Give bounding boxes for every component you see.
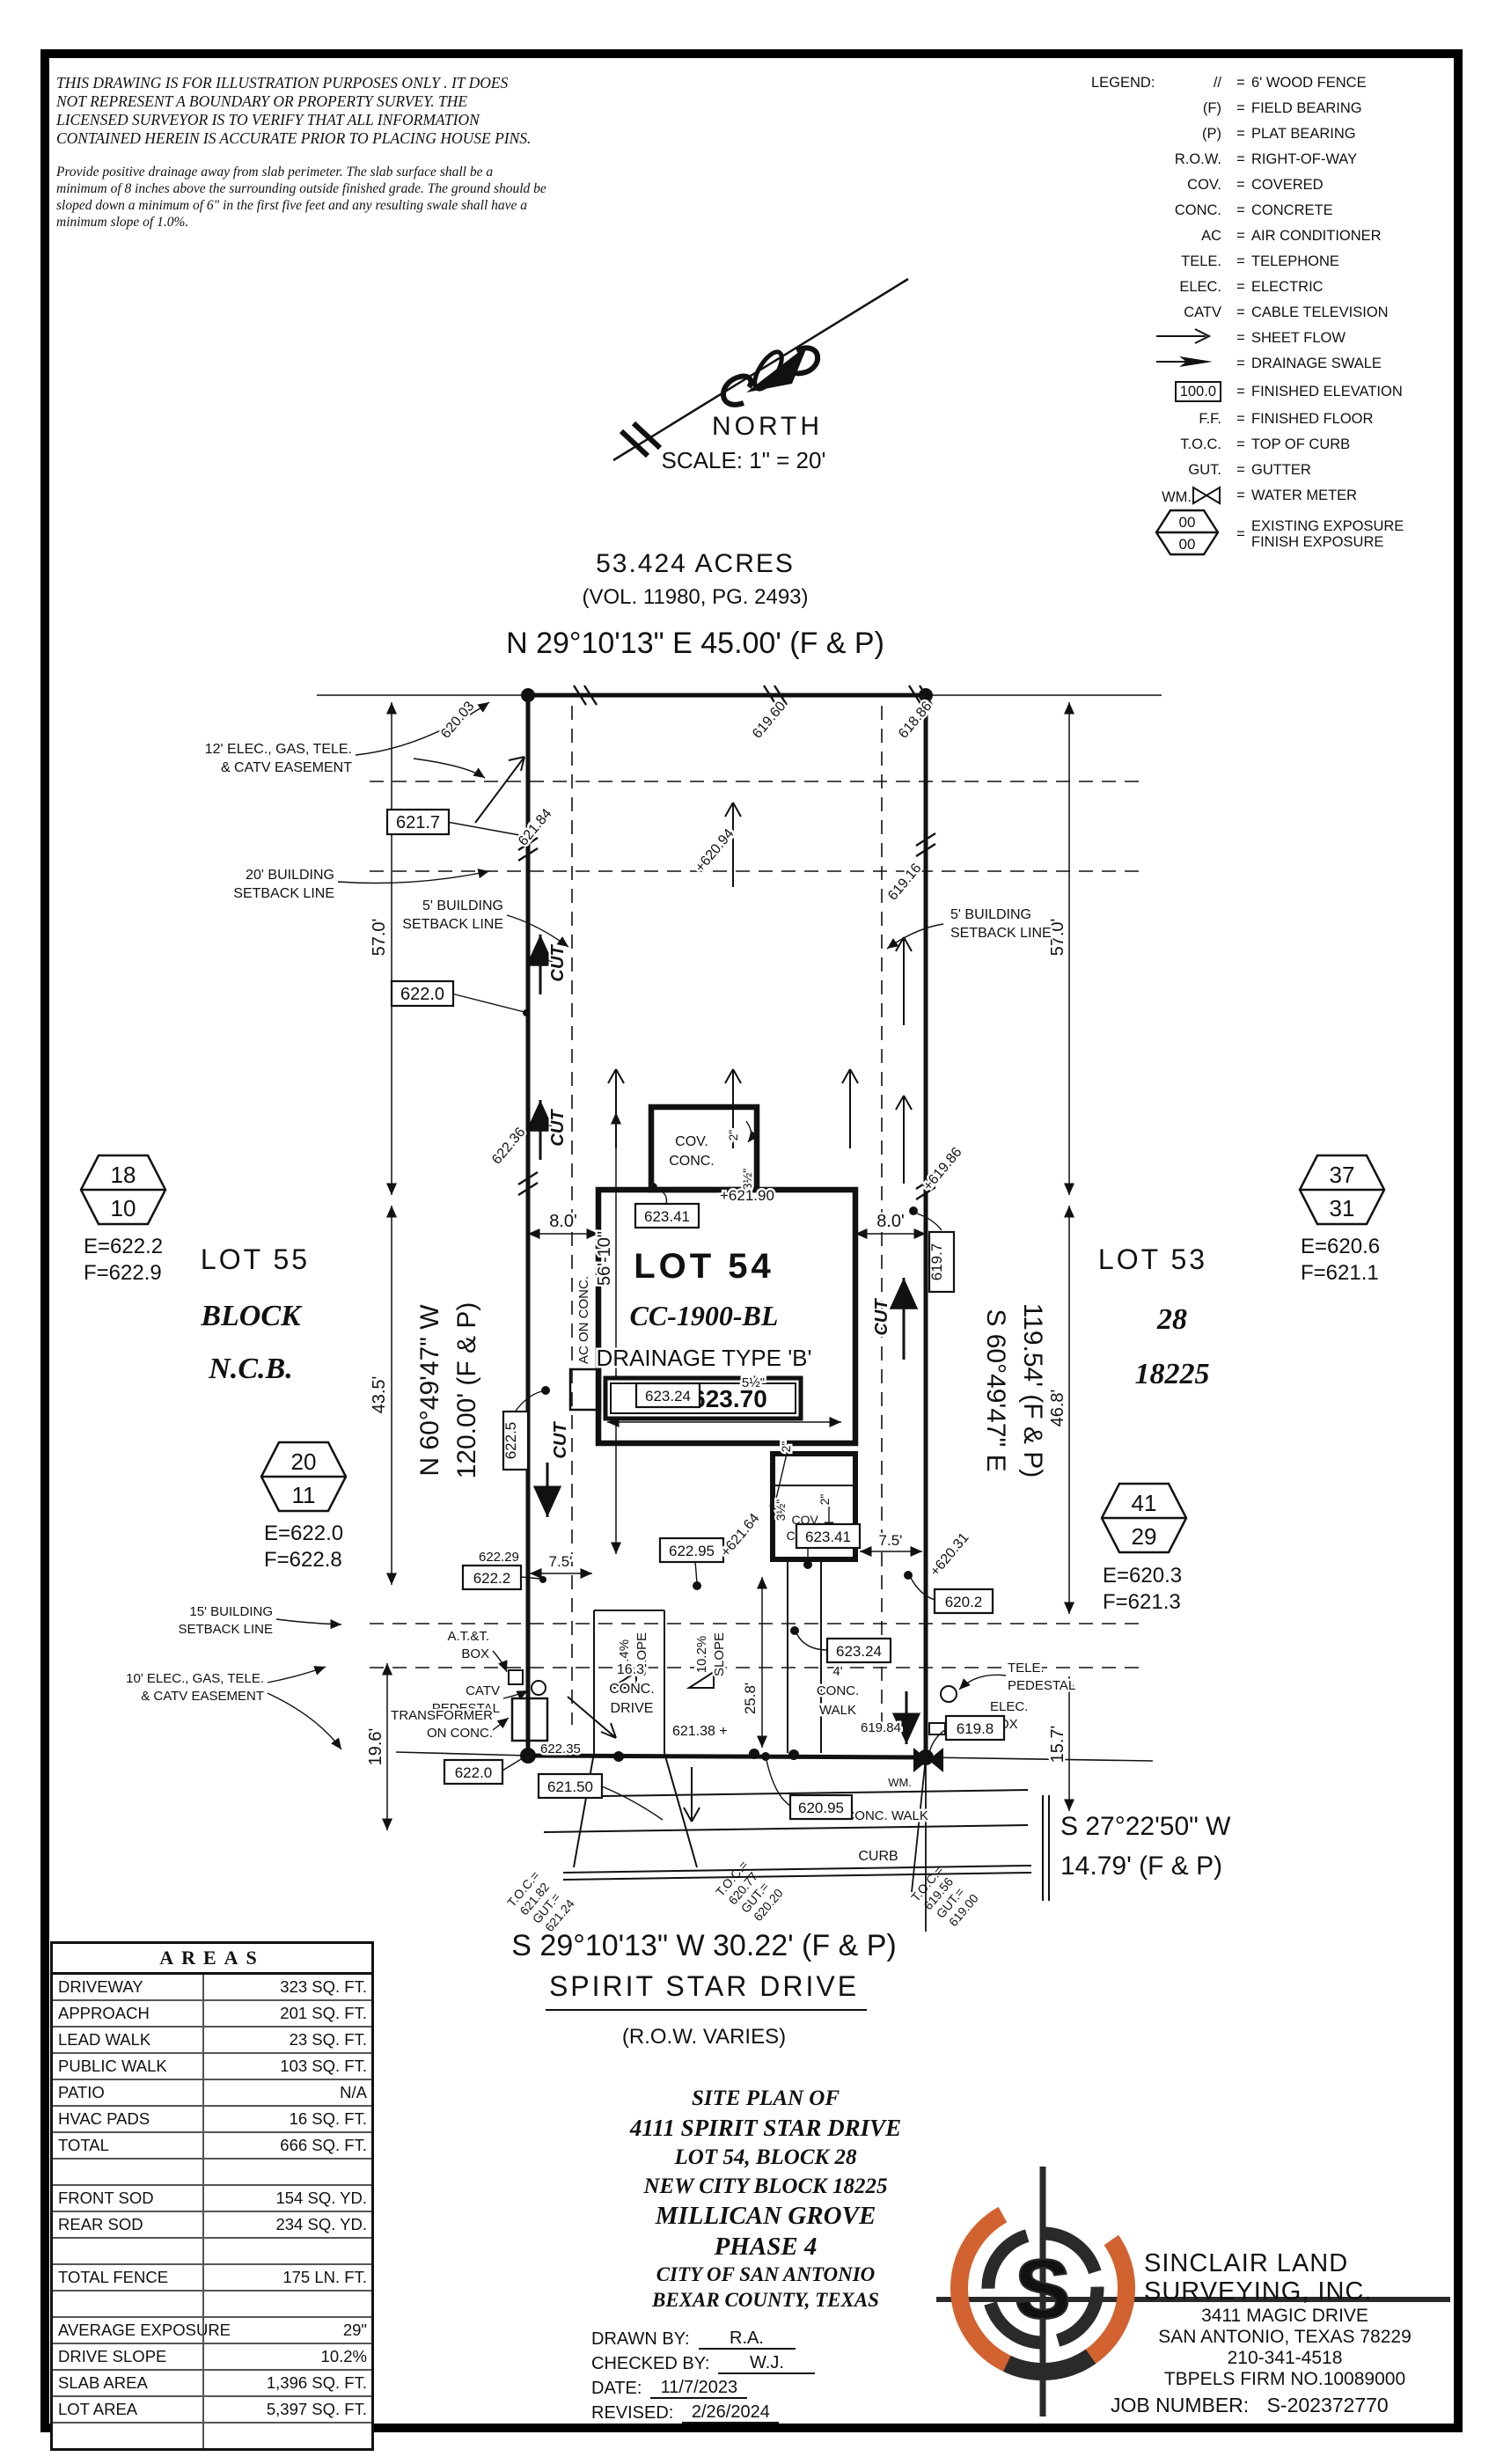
left-bearing-line2: 120.00' (F & P) [452,1302,481,1479]
svg-text:15.7': 15.7' [1048,1726,1067,1764]
table-row: REAR SOD234 SQ. YD. [53,2212,371,2239]
table-row: PUBLIC WALK103 SQ. FT. [53,2054,371,2080]
scale-label: SCALE: 1" = 20' [662,447,826,473]
svg-text:41: 41 [1132,1490,1157,1516]
svg-text:2": 2" [726,1130,740,1141]
row-label [53,2239,202,2263]
svg-text:F=621.1: F=621.1 [1301,1261,1379,1285]
svg-text:CURB: CURB [858,1849,898,1864]
drawn-by-row: DRAWN BY:R.A. [591,2325,961,2350]
svg-text:621.38 +: 621.38 + [672,1724,728,1739]
title-block: SITE PLAN OF 4111 SPIRIT STAR DRIVE LOT … [528,2084,1003,2313]
row-value: 175 LN. FT. [202,2265,371,2290]
svg-text:621.7: 621.7 [396,813,440,832]
left-bearing-line1: N 60°49'47" W [415,1304,444,1477]
svg-text:SETBACK LINE: SETBACK LINE [178,1622,273,1637]
row-label: DRIVEWAY [53,1975,202,1999]
svg-text:E=620.3: E=620.3 [1103,1564,1182,1588]
field-value: W.J. [718,2353,815,2374]
svg-text:19.6': 19.6' [366,1728,385,1766]
svg-text:2": 2" [779,1441,793,1453]
lot53-label: LOT 53 [1098,1243,1207,1275]
svg-text:CUT: CUT [872,1298,891,1336]
title-line: CITY OF SAN ANTONIO [528,2262,1003,2287]
svg-text:622.36: 622.36 [489,1125,529,1167]
svg-text:37: 37 [1330,1162,1355,1188]
svg-text:5½": 5½" [742,1375,765,1390]
table-row: TOTAL FENCE175 LN. FT. [53,2265,371,2292]
svg-text:619.7: 619.7 [928,1243,945,1281]
job-number: JOB NUMBER: S-202372770 [1111,2394,1454,2417]
title-line: 4111 SPIRIT STAR DRIVE [528,2113,1003,2143]
row-label: HVAC PADS [53,2107,202,2131]
svg-text:SETBACK LINE: SETBACK LINE [950,926,1052,941]
surveyor-name: SINCLAIR LAND SURVEYING, INC. [1144,2249,1452,2306]
table-row: SLAB AREA1,396 SQ. FT. [53,2371,371,2397]
row-label: REAR SOD [53,2212,202,2237]
row-value: 1,396 SQ. FT. [202,2371,371,2395]
svg-text:7.5': 7.5' [879,1532,903,1549]
svg-text:TRANSFORMER: TRANSFORMER [391,1708,493,1723]
svg-text:8.0': 8.0' [876,1212,905,1231]
lot55-label: LOT 55 [201,1243,310,1275]
title-line: SITE PLAN OF [528,2084,1003,2113]
svg-text:621.50: 621.50 [547,1778,593,1795]
svg-text:3½": 3½" [774,1500,788,1521]
job-number-value: S-202372770 [1267,2394,1389,2416]
north-label: NORTH [712,412,823,441]
svg-text:29: 29 [1132,1523,1157,1550]
svg-text:F=622.8: F=622.8 [264,1548,342,1572]
svg-text:622.29: 622.29 [479,1550,519,1565]
row-label: PUBLIC WALK [53,2054,202,2079]
revised-row: REVISED:2/26/2024 [591,2399,961,2424]
svg-text:623.41: 623.41 [644,1208,690,1225]
row-value: 5,397 SQ. FT. [202,2397,371,2422]
svg-text:4': 4' [832,1664,842,1679]
block-word: BLOCK [200,1300,303,1332]
svg-text:46.8': 46.8' [1048,1390,1067,1427]
svg-text:A.T.&T.: A.T.&T. [447,1629,489,1644]
row-varies-label: (R.O.W. VARIES) [622,2025,786,2049]
field-value: 2/26/2024 [682,2402,779,2424]
svg-text:622.5: 622.5 [502,1422,519,1460]
surveyor-city: SAN ANTONIO, TEXAS 78229 [1118,2327,1452,2348]
svg-text:31: 31 [1330,1195,1355,1221]
right-bearing-line1: S 60°49'47" E [981,1309,1010,1471]
svg-text:PEDESTAL: PEDESTAL [1008,1678,1075,1693]
title-line: BEXAR COUNTY, TEXAS [528,2287,1003,2313]
row-label: LOT AREA [53,2397,202,2422]
areas-title: AREAS [53,1944,371,1975]
surveyor-phone: 210-341-4518 [1118,2348,1452,2369]
svg-text:619.84: 619.84 [861,1720,901,1735]
svg-text:SETBACK LINE: SETBACK LINE [233,886,334,901]
svg-text:10: 10 [111,1195,136,1221]
surveyor-firm-number: TBPELS FIRM NO.10089000 [1118,2369,1452,2390]
title-line: NEW CITY BLOCK 18225 [528,2172,1003,2201]
svg-text:623.24: 623.24 [836,1643,882,1660]
surveyor-name-line1: SINCLAIR LAND [1144,2249,1452,2277]
field-label: DRAWN BY: [591,2329,690,2350]
table-row: DRIVEWAY323 SQ. FT. [53,1975,371,2001]
svg-text:43.5': 43.5' [370,1376,389,1414]
row-label: AVERAGE EXPOSURE [53,2318,202,2343]
table-row: FRONT SOD154 SQ. YD. [53,2186,371,2212]
field-label: REVISED: [591,2403,673,2424]
svg-text:622.0: 622.0 [400,985,444,1004]
row-value: 29" [202,2318,371,2343]
row-value: 23 SQ. FT. [202,2028,371,2052]
corner-bearing-line1: S 27°22'50" W [1060,1812,1231,1841]
svg-text:2": 2" [818,1494,832,1506]
row-label: TOTAL FENCE [53,2265,202,2290]
logo-letter: S [1015,2242,1071,2336]
ncb-18225: 18225 [1135,1358,1210,1390]
svg-text:622.2: 622.2 [473,1570,511,1587]
svg-text:622.35: 622.35 [540,1742,581,1756]
areas-table: AREAS DRIVEWAY323 SQ. FT. APPROACH201 SQ… [50,1941,374,2451]
table-row: DRIVE SLOPE10.2% [53,2344,371,2371]
table-row: LOT AREA5,397 SQ. FT. [53,2397,371,2424]
table-row: AVERAGE EXPOSURE29" [53,2318,371,2344]
row-label: TOTAL [53,2133,202,2158]
svg-text:CUT: CUT [548,944,568,982]
row-label [53,2424,202,2448]
field-label: DATE: [591,2379,642,2399]
title-line: MILLICAN GROVE [528,2201,1003,2232]
drainage-type: DRAINAGE TYPE 'B' [597,1345,812,1371]
row-label: FRONT SOD [53,2186,202,2211]
svg-text:CUT: CUT [551,1421,570,1459]
svg-text:+621.64: +621.64 [718,1511,763,1560]
svg-text:+621.90: +621.90 [720,1187,774,1204]
svg-text:E=622.2: E=622.2 [84,1235,163,1258]
row-label: PATIO [53,2080,202,2105]
row-value: 10.2% [202,2344,371,2369]
row-value: 323 SQ. FT. [202,1975,371,1999]
svg-text:12' ELEC., GAS, TELE.: 12' ELEC., GAS, TELE. [205,742,352,757]
svg-text:25.8': 25.8' [742,1683,759,1714]
svg-text:8.0': 8.0' [549,1212,577,1231]
corner-monument-dots [520,688,934,1765]
row-value: 234 SQ. YD. [202,2212,371,2237]
svg-text:SETBACK LINE: SETBACK LINE [402,917,503,932]
drawing-fields: DRAWN BY:R.A. CHECKED BY:W.J. DATE:11/7/… [591,2325,961,2424]
row-label: SLAB AREA [53,2371,202,2395]
field-value: R.A. [699,2328,796,2350]
table-row [53,2424,371,2448]
svg-text:& CATV EASEMENT: & CATV EASEMENT [141,1689,264,1704]
svg-text:COV.: COV. [675,1134,708,1149]
date-row: DATE:11/7/2023 [591,2374,961,2399]
row-value: N/A [202,2080,371,2105]
svg-text:CONC.: CONC. [817,1683,859,1698]
ncb-word: N.C.B. [208,1353,292,1385]
row-label [53,2160,202,2184]
svg-text:18: 18 [111,1162,136,1188]
job-number-label: JOB NUMBER: [1111,2394,1249,2416]
fence-tick-marks [518,686,935,1199]
svg-text:CUT: CUT [548,1109,568,1147]
toc-gutter-stack-2: T.O.C.=620.77 GUT.=620.20 [713,1857,786,1928]
svg-text:620.03: 620.03 [438,699,478,741]
svg-text:16.3': 16.3' [617,1662,647,1677]
right-bearing-line2: 119.54' (F & P) [1018,1303,1047,1478]
svg-text:WM.: WM. [888,1776,912,1789]
svg-text:619.16: 619.16 [885,861,925,903]
surveyor-name-line2: SURVEYING, INC. [1144,2277,1452,2306]
row-value: 103 SQ. FT. [202,2054,371,2079]
block-28: 28 [1156,1303,1187,1336]
table-row [53,2292,371,2318]
row-value: 201 SQ. FT. [202,2001,371,2026]
title-line: PHASE 4 [528,2232,1003,2262]
svg-text:AC ON CONC.: AC ON CONC. [576,1276,591,1364]
row-label: APPROACH [53,2001,202,2026]
svg-text:10' ELEC., GAS, TELE.: 10' ELEC., GAS, TELE. [126,1671,264,1686]
svg-text:623.41: 623.41 [805,1529,851,1545]
table-row: APPROACH201 SQ. FT. [53,2001,371,2028]
front-bearing-label: S 29°10'13" W 30.22' (F & P) [511,1929,896,1962]
svg-text:CATV: CATV [466,1683,500,1698]
field-label: CHECKED BY: [591,2354,709,2374]
table-row: PATION/A [53,2080,371,2107]
field-value: 11/7/2023 [650,2378,747,2399]
svg-text:619.8: 619.8 [957,1720,994,1737]
svg-text:56'-10": 56'-10" [595,1231,614,1286]
volume-page-label: (VOL. 11980, PG. 2493) [582,585,808,609]
row-value [202,2239,371,2263]
row-label [53,2292,202,2316]
rear-bearing-label: N 29°10'13" E 45.00' (F & P) [506,627,884,660]
svg-text:20: 20 [291,1448,317,1475]
row-label: DRIVE SLOPE [53,2344,202,2369]
table-row: TOTAL666 SQ. FT. [53,2133,371,2160]
svg-text:57.0': 57.0' [370,919,389,957]
title-line: LOT 54, BLOCK 28 [528,2143,1003,2172]
svg-text:619.60: 619.60 [750,699,789,741]
svg-text:SLOPE: SLOPE [712,1632,727,1676]
svg-text:621.84: 621.84 [516,806,555,848]
svg-text:10.2%: 10.2% [694,1636,709,1674]
toc-gutter-stack-1: T.O.C.=621.82 GUT.=621.24 [504,1867,577,1939]
svg-text:WALK: WALK [819,1703,856,1718]
svg-text:15' BUILDING: 15' BUILDING [189,1604,273,1619]
acreage-label: 53.424 ACRES [596,549,795,578]
table-row [53,2239,371,2265]
street-name: SPIRIT STAR DRIVE [549,1970,859,2002]
svg-text:F=621.3: F=621.3 [1103,1590,1181,1614]
house-footprint [598,1107,855,1559]
svg-text:20' BUILDING: 20' BUILDING [246,868,334,883]
cc-number: CC-1900-BL [630,1300,779,1331]
svg-text:CONC.: CONC. [669,1154,715,1169]
svg-text:+620.31: +620.31 [928,1530,972,1580]
row-value: 16 SQ. FT. [202,2107,371,2131]
surveyor-address: 3411 MAGIC DRIVE SAN ANTONIO, TEXAS 7822… [1118,2306,1452,2390]
svg-text:ON CONC.: ON CONC. [427,1726,493,1741]
svg-text:+620.94: +620.94 [693,826,737,876]
svg-text:622.0: 622.0 [455,1764,493,1781]
table-row: HVAC PADS16 SQ. FT. [53,2107,371,2133]
svg-text:DRIVE: DRIVE [611,1701,654,1716]
drainage-swale-arrows [540,935,906,1744]
svg-text:F=622.9: F=622.9 [84,1261,162,1285]
row-value [202,2424,371,2448]
svg-text:E=622.0: E=622.0 [264,1522,343,1545]
row-value: 666 SQ. FT. [202,2133,371,2158]
svg-text:618.86: 618.86 [896,699,935,741]
svg-text:ELEC.: ELEC. [990,1699,1028,1714]
svg-text:623.24: 623.24 [645,1388,691,1404]
surveyor-street: 3411 MAGIC DRIVE [1118,2306,1452,2327]
site-plan-sheet: THIS DRAWING IS FOR ILLUSTRATION PURPOSE… [0,0,1496,2464]
row-value [202,2292,371,2316]
row-value [202,2160,371,2184]
svg-text:5' BUILDING: 5' BUILDING [422,898,503,913]
svg-text:7.5': 7.5' [549,1553,573,1570]
svg-text:11: 11 [292,1482,316,1508]
table-row: LEAD WALK23 SQ. FT. [53,2028,371,2054]
svg-text:TELE.: TELE. [1008,1661,1045,1676]
corner-bearing-line2: 14.79' (F & P) [1060,1852,1222,1881]
svg-text:E=620.6: E=620.6 [1301,1235,1380,1258]
svg-text:622.95: 622.95 [669,1543,715,1559]
svg-text:CONC.: CONC. [609,1682,655,1697]
row-value: 154 SQ. YD. [202,2186,371,2211]
lot54-label: LOT 54 [634,1247,774,1286]
table-row [53,2160,371,2186]
checked-by-row: CHECKED BY:W.J. [591,2350,961,2374]
svg-text:620.2: 620.2 [945,1594,983,1610]
svg-text:5' BUILDING: 5' BUILDING [950,907,1031,922]
svg-text:& CATV EASEMENT: & CATV EASEMENT [221,760,352,775]
row-label: LEAD WALK [53,2028,202,2052]
svg-text:620.95: 620.95 [798,1800,844,1816]
svg-text:BOX: BOX [461,1646,489,1661]
